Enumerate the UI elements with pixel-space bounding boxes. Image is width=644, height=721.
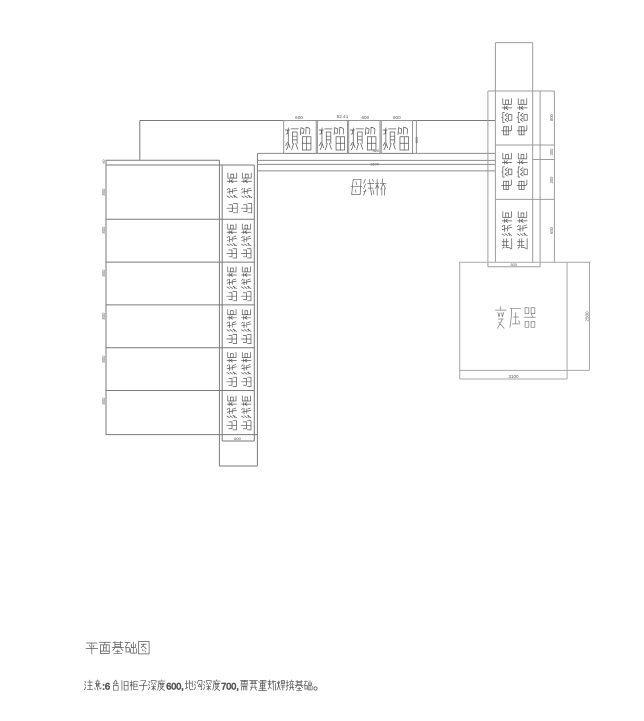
svg-text:600: 600 [234, 436, 241, 441]
svg-text:800: 800 [101, 397, 106, 405]
svg-text:426: 426 [373, 148, 380, 153]
svg-text:800: 800 [415, 137, 419, 143]
svg-text:600: 600 [295, 115, 303, 120]
svg-text:60: 60 [102, 160, 106, 164]
svg-text:650: 650 [549, 226, 554, 234]
svg-text:800: 800 [101, 226, 106, 234]
svg-text:800: 800 [101, 269, 106, 277]
svg-text:600: 600 [361, 115, 369, 120]
svg-text:600: 600 [393, 115, 401, 120]
svg-text:800: 800 [101, 188, 106, 196]
svg-text:2500: 2500 [585, 311, 590, 322]
svg-text:1600: 1600 [370, 162, 380, 167]
svg-text::6: :6 [102, 682, 110, 693]
svg-text:500: 500 [510, 262, 517, 267]
svg-text:800: 800 [101, 312, 106, 320]
svg-text:52.41: 52.41 [337, 114, 349, 119]
svg-text:300: 300 [549, 148, 554, 156]
svg-text:600,: 600, [166, 682, 184, 692]
svg-text:800: 800 [101, 355, 106, 363]
svg-text:300: 300 [549, 176, 554, 184]
svg-text:3100: 3100 [508, 374, 519, 379]
svg-text:800: 800 [549, 113, 554, 121]
svg-text:700,: 700, [221, 682, 239, 692]
